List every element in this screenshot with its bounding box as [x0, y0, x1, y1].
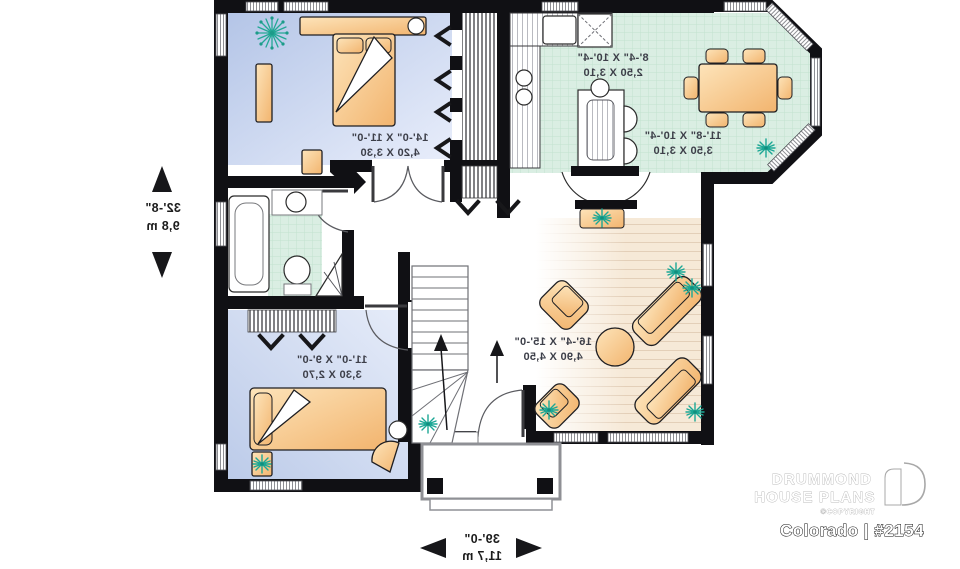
window-icon: [724, 2, 766, 11]
dining-chair: [743, 49, 765, 63]
snack-bar: [562, 172, 650, 205]
pillow: [337, 38, 363, 53]
dining-table: [699, 64, 777, 112]
plant-icon: [253, 455, 271, 473]
bathtub-icon: [229, 196, 269, 292]
svg-text:4,20 X 3,30: 4,20 X 3,30: [360, 147, 420, 159]
dining-chair: [778, 77, 792, 99]
window-icon: [250, 481, 302, 490]
dimension-arrow-right-icon: [516, 538, 542, 558]
window-icon: [703, 244, 712, 286]
svg-text:14'-0" X 11'-0": 14'-0" X 11'-0": [351, 132, 428, 144]
window-icon: [216, 14, 226, 56]
bathroom-sink-icon: [286, 192, 306, 212]
plant-icon: [540, 401, 558, 419]
svg-text:8'-4" X 10'-4": 8'-4" X 10'-4": [577, 52, 648, 64]
dining-chair: [743, 113, 765, 127]
plant-icon: [419, 415, 437, 433]
floor-plan-page: 14'-0" X 11'-0" 4,20 X 3,30 8'-4" X 10'-…: [0, 0, 960, 569]
brand-name-line1: DRUMMOND: [772, 471, 872, 488]
staircase: [412, 266, 504, 443]
window-icon: [216, 202, 226, 246]
plan-name: Colorado | #2154: [780, 521, 924, 540]
plant-icon: [686, 403, 704, 421]
bed: [333, 34, 395, 126]
window-icon: [554, 433, 598, 442]
svg-text:11,7 m: 11,7 m: [462, 549, 502, 563]
window-icon: [608, 433, 688, 442]
svg-text:2,50 X 3,10: 2,50 X 3,10: [583, 67, 643, 79]
dimension-width: 39'-0" 11,7 m: [420, 532, 542, 563]
side-table: [389, 421, 407, 439]
hall-bench: [580, 209, 624, 228]
dresser: [256, 64, 272, 122]
dresser: [300, 17, 426, 35]
window-icon: [703, 336, 712, 384]
dimension-arrow-down-icon: [152, 252, 172, 278]
dining-chair: [706, 113, 728, 127]
dimension-arrow-up-icon: [152, 166, 172, 192]
svg-text:11'-0" X 9'-0": 11'-0" X 9'-0": [297, 354, 368, 366]
plant-icon: [255, 16, 288, 49]
svg-text:32'-8": 32'-8": [145, 201, 181, 215]
svg-text:9,8 m: 9,8 m: [146, 219, 179, 233]
plant-icon: [757, 139, 775, 157]
dimension-depth: 32'-8" 9,8 m: [145, 166, 181, 278]
dining-chair: [706, 49, 728, 63]
nightstand: [302, 150, 322, 174]
drummond-logo-icon: [885, 463, 925, 505]
brand-name-line2: HOUSE PLANS: [754, 489, 876, 506]
porch: [422, 444, 560, 510]
toilet-icon: [284, 256, 311, 295]
svg-text:3,30 X 2,70: 3,30 X 2,70: [302, 369, 362, 381]
svg-text:3,50 X 3,10: 3,50 X 3,10: [653, 145, 713, 157]
svg-text:4,90 X 4,50: 4,90 X 4,50: [523, 351, 583, 363]
porch-post: [537, 478, 553, 494]
window-icon: [542, 2, 578, 11]
dimension-arrow-left-icon: [420, 538, 446, 558]
entry-mat: [452, 432, 478, 443]
floor-plan-drawing: 14'-0" X 11'-0" 4,20 X 3,30 8'-4" X 10'-…: [0, 0, 960, 569]
bathroom-door-opening: [342, 188, 354, 230]
plant-icon: [667, 263, 685, 281]
refrigerator-icon: [578, 14, 612, 47]
svg-text:11'-8" X 10'-4": 11'-8" X 10'-4": [644, 130, 721, 142]
porch-step: [430, 499, 552, 510]
bedroom2-closet: [248, 310, 336, 332]
svg-text:16'-4" X 15'-0": 16'-4" X 15'-0": [514, 336, 592, 348]
bed: [250, 388, 386, 450]
copyright-text: ©COPYRIGHT: [821, 508, 876, 516]
svg-text:39'-0": 39'-0": [464, 532, 500, 546]
coat-closet: [462, 166, 497, 198]
branding: DRUMMOND HOUSE PLANS ©COPYRIGHT Colorado…: [754, 463, 925, 540]
dining-chair: [684, 77, 698, 99]
window-icon: [246, 2, 278, 11]
bay-window-icon: [811, 58, 820, 126]
coffee-table: [596, 328, 634, 366]
window-icon: [216, 444, 226, 470]
porch-post: [427, 478, 443, 494]
master-closet-floor: [462, 13, 498, 163]
window-icon: [284, 2, 328, 11]
plant-icon: [683, 279, 701, 297]
entry-direction-arrow-icon: [490, 340, 504, 383]
lamp-icon: [408, 18, 424, 34]
stove-icon: [543, 16, 576, 44]
